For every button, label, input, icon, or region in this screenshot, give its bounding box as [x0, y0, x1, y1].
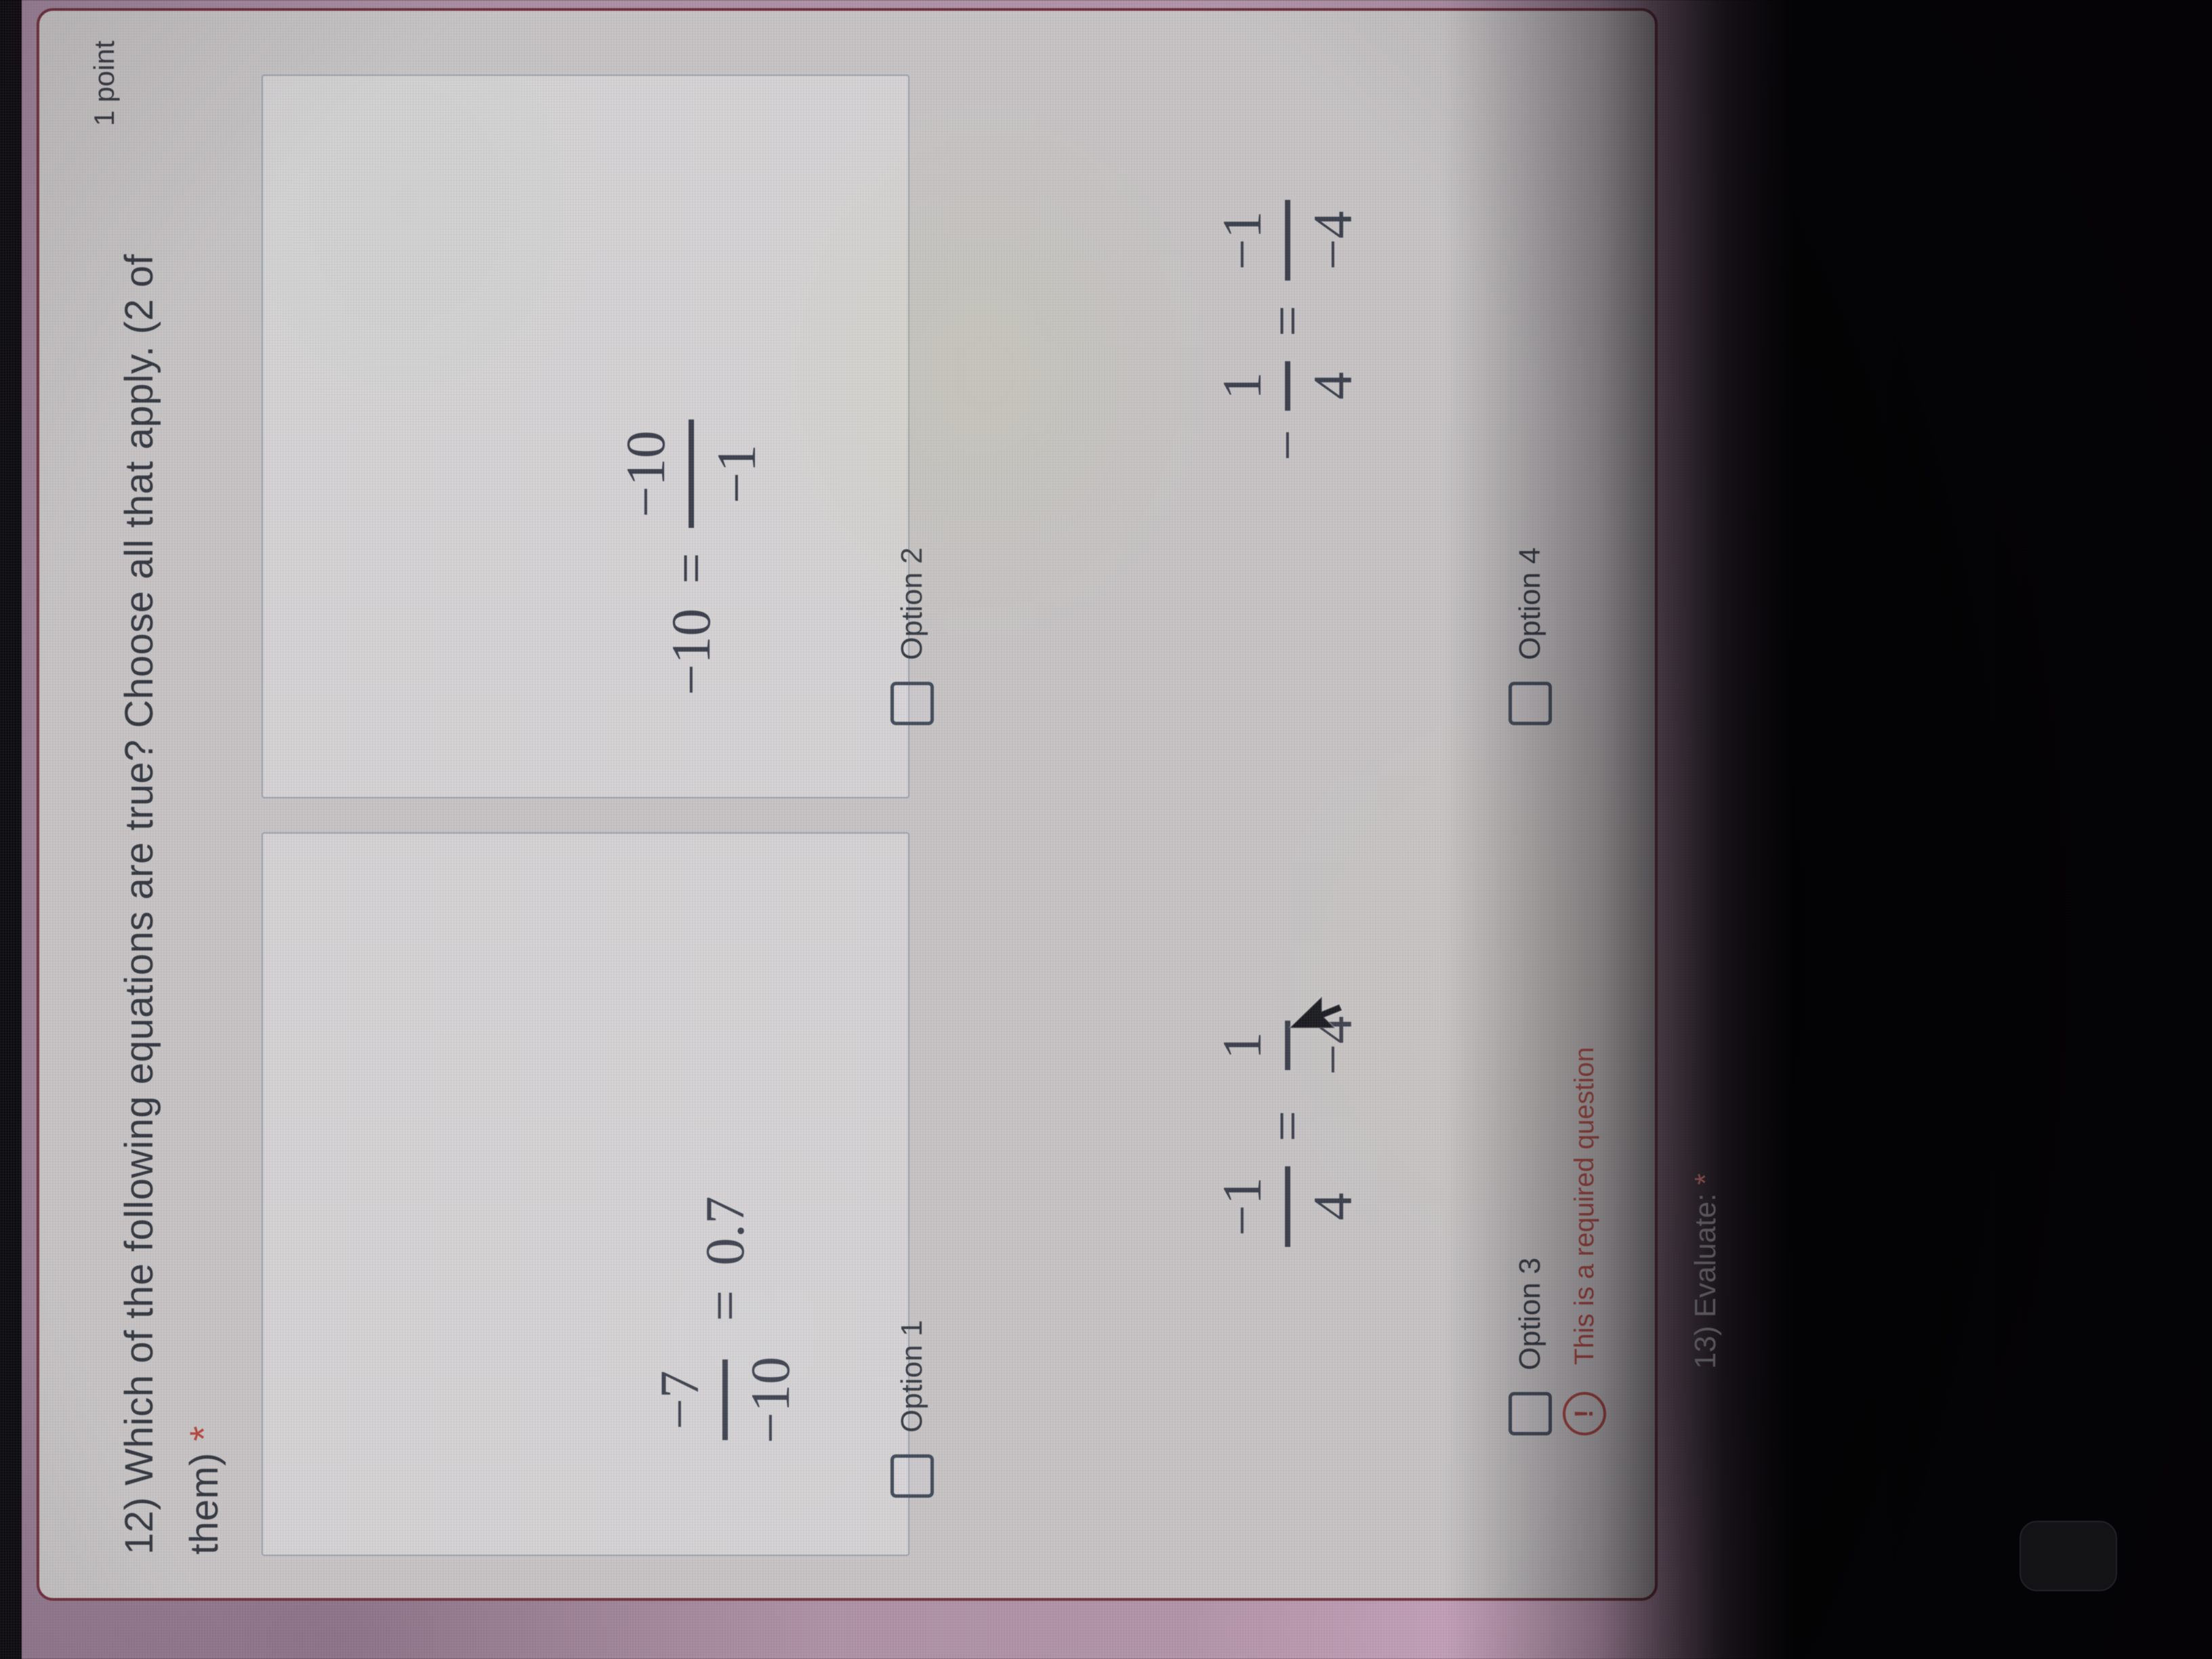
question-12-title-line2: them) * [172, 77, 237, 1555]
form-screen: 12) Which of the following equations are… [0, 0, 2212, 1659]
option-2-label: Option 2 [895, 548, 929, 660]
option-1-label: Option 1 [895, 1320, 929, 1433]
fraction: −1 4 [1214, 1166, 1361, 1247]
required-error-icon: ! [1563, 1392, 1606, 1435]
equation-option-1: −7 −10 = 0.7 [652, 1196, 798, 1454]
checkbox-option-2[interactable] [890, 682, 934, 725]
equation-option-2: −10 = −10 −1 [618, 419, 764, 695]
equation-option-4: − 1 4 = −1 −4 [1214, 200, 1361, 461]
fraction: 1 4 [1214, 361, 1361, 411]
dim-offscreen-element [2020, 1521, 2117, 1591]
equation-lhs: −10 [663, 609, 719, 695]
equals-sign: = [663, 553, 719, 584]
photo-of-screen: 12) Which of the following equations are… [0, 0, 2212, 1659]
question-13-title: 13) Evaluate: * [1689, 1173, 1723, 1369]
option-3-row[interactable]: Option 3 [1509, 1258, 1552, 1435]
equals-sign: = [697, 1290, 753, 1322]
equals-sign: = [1260, 306, 1315, 337]
mouse-cursor-icon [1289, 993, 1346, 1028]
equals-sign: = [1260, 1111, 1315, 1142]
fraction: −7 −10 [652, 1346, 798, 1454]
required-error: ! This is a required question [1563, 1047, 1606, 1435]
checkbox-option-1[interactable] [890, 1454, 934, 1498]
fraction: −10 −1 [618, 419, 764, 528]
option-2-image[interactable] [262, 75, 909, 798]
required-asterisk: * [1689, 1173, 1722, 1185]
option-2-row[interactable]: Option 2 [890, 548, 934, 725]
question-12-title: 12) Which of the following equations are… [107, 77, 237, 1555]
option-1-row[interactable]: Option 1 [890, 1320, 934, 1498]
equation-rhs: 0.7 [697, 1196, 753, 1266]
question-12-title-line1: 12) Which of the following equations are… [107, 77, 172, 1555]
fraction: −1 −4 [1214, 200, 1361, 281]
minus-sign: − [1260, 430, 1315, 461]
required-error-message: This is a required question [1570, 1047, 1600, 1365]
checkbox-option-4[interactable] [1509, 682, 1552, 725]
option-4-label: Option 4 [1513, 548, 1547, 660]
required-asterisk: * [182, 1426, 226, 1441]
screen-top-black-strip [0, 0, 22, 1659]
option-3-label: Option 3 [1513, 1258, 1547, 1370]
option-1-image[interactable] [262, 832, 909, 1556]
equation-option-3: −1 4 = 1 −4 [1214, 1005, 1361, 1247]
option-4-row[interactable]: Option 4 [1509, 548, 1552, 725]
question-12-card: 12) Which of the following equations are… [37, 8, 1658, 1601]
points-badge: 1 point [88, 41, 121, 126]
checkbox-option-3[interactable] [1509, 1392, 1552, 1435]
